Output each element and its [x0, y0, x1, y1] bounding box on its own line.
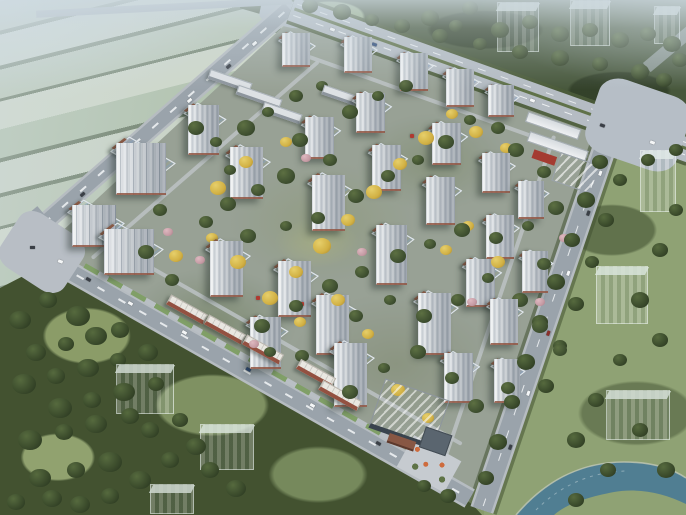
tree-park [58, 337, 74, 351]
tree-green [491, 122, 505, 134]
tree-east [669, 204, 683, 216]
tree-gold [331, 294, 345, 306]
tree-east [564, 233, 580, 247]
tree-green [224, 165, 236, 175]
tree-park [39, 292, 57, 307]
tree-park [141, 422, 159, 437]
tree-park [55, 424, 73, 439]
tree-east [568, 493, 584, 507]
tree-green [289, 90, 303, 102]
tree-green [482, 273, 494, 283]
tower-facade [482, 153, 510, 193]
tree-gold [169, 250, 183, 262]
tree-forest [522, 15, 538, 29]
tree-east [652, 243, 668, 257]
tree-green [468, 399, 484, 413]
tree-forest [462, 1, 478, 15]
tree-forest [582, 23, 598, 37]
tree-park [85, 415, 107, 434]
tree-green [532, 319, 548, 333]
tower-facade [518, 181, 544, 219]
tree-gold [262, 291, 278, 305]
tree-park [12, 374, 36, 394]
tree-forest [551, 26, 569, 41]
tree-forest [365, 14, 379, 26]
tree-green [355, 266, 369, 278]
tree-green [210, 137, 222, 147]
school-red-block [532, 149, 558, 165]
tree-green [280, 221, 292, 231]
tower-facade [305, 117, 334, 159]
tree-forest [302, 0, 318, 13]
tree-green [342, 105, 358, 119]
aerial-masterplan-rendering [0, 0, 686, 515]
tree-park [9, 311, 31, 330]
tree-park [70, 496, 90, 513]
tree-east [478, 471, 494, 485]
tree-forest [473, 38, 487, 50]
tree-park [29, 469, 51, 488]
tree-green [508, 143, 524, 157]
river [506, 440, 686, 515]
tree-east [592, 155, 608, 169]
tower-facade [490, 299, 518, 345]
tree-green [262, 107, 274, 117]
tree-green [445, 372, 459, 384]
tree-park [26, 344, 46, 361]
tree-green [438, 135, 454, 149]
tree-green [372, 91, 384, 101]
tree-green [399, 80, 413, 92]
planned-building-ghost [150, 484, 194, 514]
tree-east [669, 144, 683, 156]
tower-facade [116, 143, 166, 195]
tree-green [220, 197, 236, 211]
tree-park [172, 413, 188, 427]
tree-gold [230, 255, 246, 269]
tree-east [631, 292, 649, 307]
community-center-wing [419, 426, 453, 456]
tree-gold [393, 158, 407, 170]
tree-park [138, 344, 158, 361]
tree-park [111, 322, 129, 337]
tree-green [464, 115, 476, 125]
tree-gold [294, 317, 306, 327]
tree-park [161, 452, 179, 467]
tree-green [412, 155, 424, 165]
tree-east [417, 480, 431, 492]
tree-forest [421, 10, 439, 25]
tree-park [226, 480, 246, 497]
tree-gold [440, 245, 452, 255]
tree-park [129, 471, 151, 490]
tree-east [613, 354, 627, 366]
tree-green [277, 168, 295, 183]
tower-facade [446, 69, 474, 107]
tree-gold [341, 214, 355, 226]
tree-park [121, 408, 139, 423]
car [30, 246, 35, 249]
tree-park [186, 438, 206, 455]
tree-east [504, 395, 520, 409]
tree-east [517, 354, 535, 369]
tree-gold [239, 156, 253, 168]
tree-green [188, 121, 204, 135]
tree-east [657, 462, 675, 477]
tree-gold [289, 266, 303, 278]
tree-park [42, 490, 62, 507]
tree-green [384, 295, 396, 305]
tree-gold [210, 181, 226, 195]
tree-park [18, 430, 42, 450]
tower-facade [282, 33, 310, 67]
tree-green [522, 221, 534, 231]
tree-park [148, 377, 164, 391]
tree-green [553, 344, 567, 356]
tree-gold [418, 131, 434, 145]
tree-gold [313, 238, 331, 253]
tree-green [237, 120, 255, 135]
tree-gold [366, 185, 382, 199]
tree-green [410, 345, 426, 359]
tree-east [567, 432, 585, 447]
tree-park [7, 494, 25, 509]
tree-east [652, 333, 668, 347]
tree-forest [656, 73, 672, 87]
tower-facade [488, 85, 514, 117]
tree-east [577, 192, 595, 207]
tree-park [201, 462, 219, 477]
tree-forest [631, 64, 649, 79]
tree-green [424, 239, 436, 249]
tree-forest [640, 27, 656, 41]
tree-green [199, 216, 213, 228]
tree-gold [491, 256, 505, 268]
tree-forest [672, 53, 686, 67]
tree-green [348, 189, 364, 203]
tree-green [153, 204, 167, 216]
tree-east [440, 489, 456, 503]
tree-forest [512, 45, 528, 59]
tree-east [547, 274, 565, 289]
tree-park [47, 368, 65, 383]
tree-east [641, 154, 655, 166]
tree-gold [446, 109, 458, 119]
tree-east [613, 174, 627, 186]
tree-park [83, 392, 101, 407]
tree-east [600, 463, 616, 477]
tree-gold [362, 329, 374, 339]
tree-forest [394, 19, 410, 33]
tree-east [598, 213, 614, 227]
tree-park [48, 398, 72, 418]
tree-gold [280, 137, 292, 147]
tree-green [537, 258, 551, 270]
tree-forest [663, 36, 681, 51]
tree-green [251, 184, 265, 196]
tree-forest [333, 4, 351, 19]
tree-park [77, 359, 99, 378]
tree-green [381, 170, 395, 182]
tree-park [66, 306, 90, 326]
tower-facade [210, 241, 243, 297]
tree-east [588, 393, 604, 407]
tree-green [501, 382, 515, 394]
tree-green [292, 133, 308, 147]
tree-forest [551, 50, 569, 65]
tree-gold [469, 126, 483, 138]
tree-green [264, 347, 276, 357]
tree-green [349, 310, 363, 322]
tree-green [165, 274, 179, 286]
tree-park [113, 383, 135, 402]
tree-east [538, 379, 554, 393]
tree-forest [592, 57, 608, 71]
tower-facade [426, 177, 455, 225]
tree-green [454, 223, 470, 237]
tower-facade [344, 37, 372, 73]
tree-park [85, 327, 107, 346]
tree-green [548, 201, 564, 215]
red-pavilion-accent [256, 296, 260, 300]
tree-green [254, 319, 270, 333]
tree-forest [432, 29, 448, 43]
tree-east [632, 423, 648, 437]
tree-green [390, 249, 406, 263]
tree-green [489, 232, 503, 244]
tree-green [537, 166, 551, 178]
tree-green [323, 154, 337, 166]
tree-forest [611, 32, 629, 47]
tree-green [138, 245, 154, 259]
tree-green [311, 212, 325, 224]
tree-forest [491, 22, 509, 37]
tree-green [451, 294, 465, 306]
tree-green [289, 300, 303, 312]
tree-east [568, 297, 584, 311]
red-pavilion-accent [410, 134, 414, 138]
tree-green [342, 385, 358, 399]
tree-east [489, 434, 507, 449]
tree-green [378, 363, 390, 373]
tree-forest [449, 20, 463, 32]
tree-green [322, 279, 338, 293]
tree-park [101, 488, 119, 503]
tree-green [416, 309, 432, 323]
tree-park [98, 452, 122, 472]
tree-park [67, 462, 85, 477]
